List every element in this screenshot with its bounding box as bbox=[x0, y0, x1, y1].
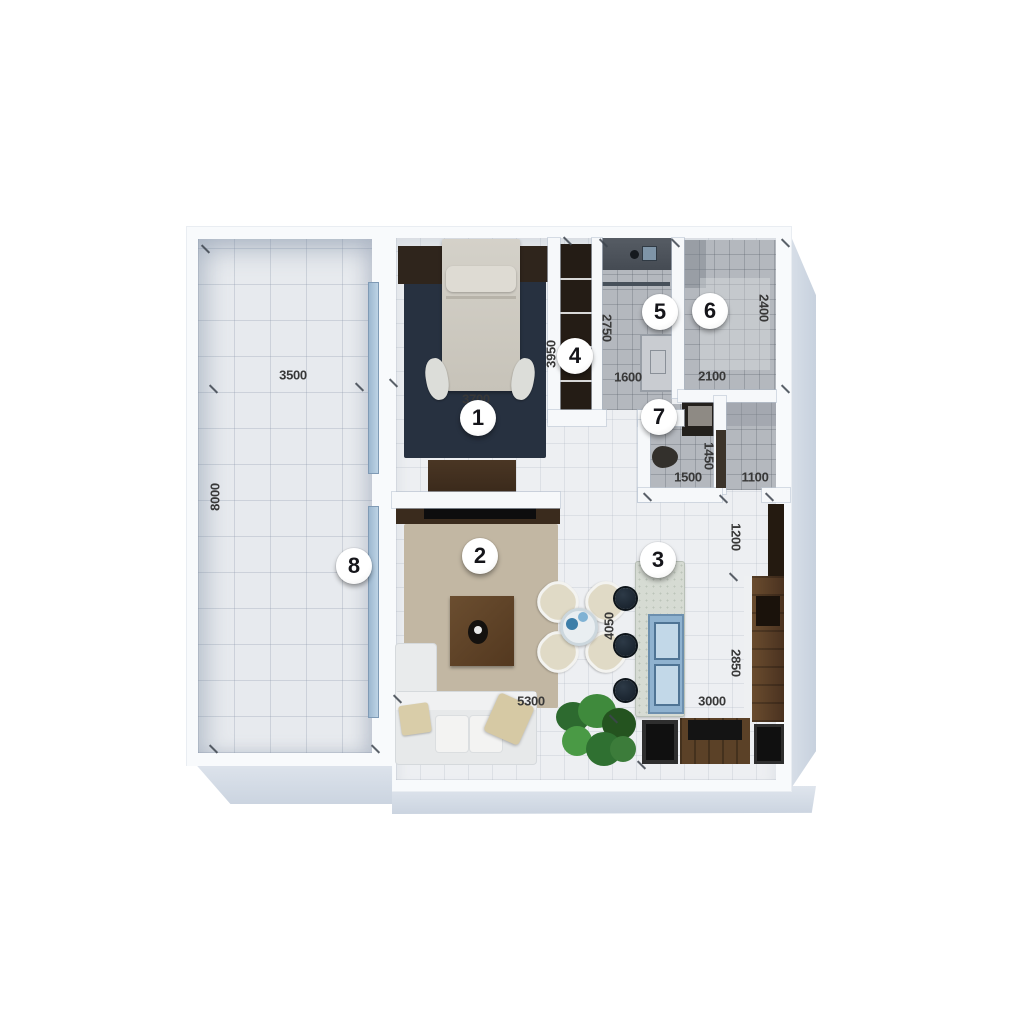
dimension-label: 8000 bbox=[208, 483, 223, 511]
counter-edge-strip bbox=[744, 576, 752, 722]
dimension-label: 3000 bbox=[698, 694, 726, 709]
room-badge-7-wc: 7 bbox=[641, 399, 677, 435]
balcony-floor bbox=[198, 239, 372, 753]
bed-pillow bbox=[446, 266, 516, 292]
dimension-label: 1100 bbox=[741, 470, 768, 485]
glass-partition-upper bbox=[368, 282, 379, 474]
shower-glass-divider bbox=[600, 282, 670, 286]
dimension-label: 1200 bbox=[729, 523, 744, 551]
wall-bedroom-right bbox=[548, 238, 560, 422]
shower-drain bbox=[650, 350, 666, 374]
cabinet-tray-top bbox=[654, 622, 680, 660]
wardrobe-shelf-line bbox=[558, 380, 594, 382]
bed bbox=[442, 239, 520, 391]
nook-shading bbox=[726, 398, 776, 426]
entry-door-mat bbox=[688, 720, 742, 740]
extrusion-shadow-bottom-left bbox=[192, 760, 394, 804]
wardrobe-shelf-line bbox=[558, 312, 594, 314]
wall-bedroom-living bbox=[392, 492, 560, 508]
wall-under-wardrobe bbox=[548, 410, 606, 426]
bottom-window-left bbox=[642, 720, 678, 764]
plant-leaf bbox=[610, 736, 636, 762]
dimension-label: 4050 bbox=[602, 612, 617, 640]
dimension-label: 1450 bbox=[702, 442, 717, 470]
floorplan-canvas: 3500 8000 3700 3950 2750 1600 2100 2400 … bbox=[0, 0, 1024, 1024]
dimension-label: 2750 bbox=[600, 314, 615, 342]
sofa-cushion-cream-left bbox=[398, 702, 432, 736]
room-badge-3-kitchen: 3 bbox=[640, 542, 676, 578]
bed-fold-line bbox=[446, 296, 516, 299]
cabinet-tray-bottom bbox=[654, 664, 680, 706]
dining-table-plate-lightblue bbox=[578, 612, 588, 622]
room-badge-2-living: 2 bbox=[462, 538, 498, 574]
wardrobe-shelf-line bbox=[558, 278, 594, 280]
room-badge-6-room: 6 bbox=[692, 293, 728, 329]
nook-door-leaf bbox=[716, 430, 726, 488]
room-badge-1-bedroom: 1 bbox=[460, 400, 496, 436]
room-badge-8-balcony: 8 bbox=[336, 548, 372, 584]
dimension-label: 3500 bbox=[279, 368, 307, 383]
room-badge-4-wardrobe: 4 bbox=[557, 338, 593, 374]
bar-stool bbox=[615, 635, 636, 656]
table-decor-dot bbox=[474, 626, 482, 634]
dimension-label: 2100 bbox=[698, 369, 726, 384]
glass-partition-lower bbox=[368, 506, 379, 718]
dining-table-plate-blue bbox=[566, 618, 578, 630]
bathroom-sink-icon bbox=[630, 250, 639, 259]
sofa-seat-cushion bbox=[436, 716, 468, 752]
dimension-label: 2400 bbox=[757, 294, 772, 322]
dimension-label: 1500 bbox=[674, 470, 702, 485]
bar-stool bbox=[615, 588, 636, 609]
bathroom-faucet-icon bbox=[642, 246, 657, 261]
wardrobe-shelving bbox=[558, 244, 594, 416]
wall-under-room6 bbox=[678, 390, 776, 402]
counter-appliance-dark bbox=[756, 596, 780, 626]
nightstand-left bbox=[398, 246, 444, 284]
room-badge-5-bathroom: 5 bbox=[642, 294, 678, 330]
dimension-label: 5300 bbox=[517, 694, 545, 709]
floor-plan: 3500 8000 3700 3950 2750 1600 2100 2400 … bbox=[0, 0, 1024, 1024]
bar-stool bbox=[615, 680, 636, 701]
bottom-window-right bbox=[754, 724, 784, 764]
bedroom-tv-stand bbox=[428, 460, 516, 492]
nightstand-right bbox=[518, 246, 548, 282]
tall-cabinet bbox=[768, 504, 784, 576]
washing-machine-lid bbox=[688, 406, 712, 426]
dimension-label: 2850 bbox=[729, 649, 744, 677]
extrusion-shadow-right bbox=[790, 234, 816, 790]
dimension-label: 1600 bbox=[614, 370, 642, 385]
